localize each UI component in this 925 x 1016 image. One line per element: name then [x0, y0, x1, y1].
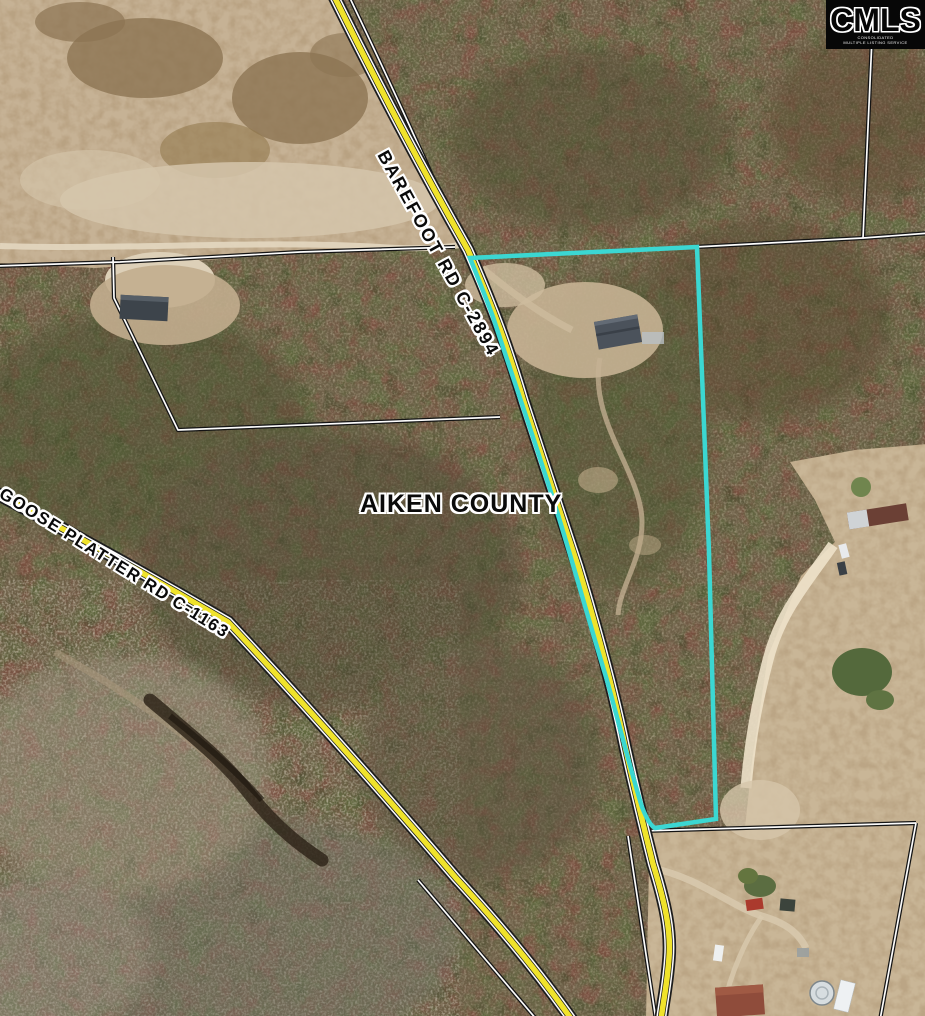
building-bottom-house [715, 984, 765, 1016]
cmls-logo-subtext-line2: MULTIPLE LISTING SERVICE [843, 40, 907, 45]
cmls-logo: CMLS CONSOLIDATED MULTIPLE LISTING SERVI… [826, 0, 925, 49]
aerial-parcel-map: BAREFOOT RD C-2894 GOOSE PLATTER RD C-11… [0, 0, 925, 1016]
building-west [119, 295, 168, 321]
cmls-logo-text: CMLS [830, 5, 921, 35]
county-label: AIKEN COUNTY [360, 490, 562, 519]
